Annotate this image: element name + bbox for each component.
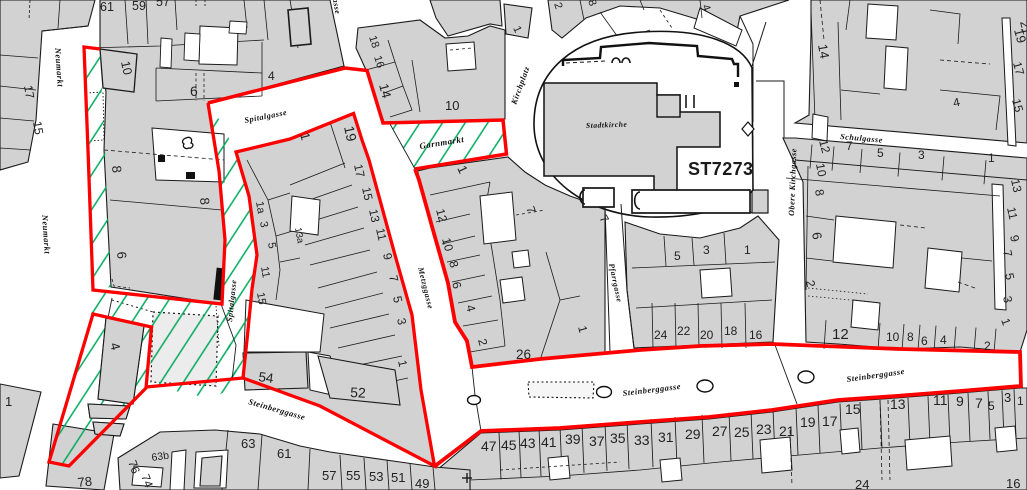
svg-text:15: 15 xyxy=(845,401,861,417)
svg-text:19: 19 xyxy=(800,414,816,430)
svg-text:8: 8 xyxy=(109,165,125,174)
svg-text:7: 7 xyxy=(846,139,853,153)
svg-text:33: 33 xyxy=(634,432,650,448)
svg-text:12: 12 xyxy=(832,326,849,343)
svg-text:8: 8 xyxy=(907,330,914,344)
svg-text:6: 6 xyxy=(114,251,130,260)
svg-text:3: 3 xyxy=(918,148,925,162)
svg-text:24: 24 xyxy=(855,477,869,490)
svg-text:18: 18 xyxy=(724,324,738,338)
svg-text:5: 5 xyxy=(877,146,884,160)
svg-text:15: 15 xyxy=(30,120,46,136)
svg-text:53: 53 xyxy=(369,469,383,484)
svg-text:1: 1 xyxy=(5,394,12,409)
svg-text:10: 10 xyxy=(886,330,900,344)
svg-text:3: 3 xyxy=(1004,390,1011,405)
svg-text:10: 10 xyxy=(445,98,459,113)
svg-text:43: 43 xyxy=(520,435,536,451)
svg-text:10: 10 xyxy=(813,162,829,178)
svg-text:25: 25 xyxy=(734,424,750,440)
svg-text:2: 2 xyxy=(984,339,991,353)
svg-text:20: 20 xyxy=(700,328,714,342)
svg-text:61: 61 xyxy=(277,446,291,461)
svg-text:9: 9 xyxy=(956,393,964,409)
svg-text:4: 4 xyxy=(268,69,275,83)
svg-text:1: 1 xyxy=(988,151,995,165)
svg-text:61: 61 xyxy=(100,0,114,14)
svg-text:17: 17 xyxy=(21,84,37,100)
svg-text:17: 17 xyxy=(822,413,838,429)
svg-text:6: 6 xyxy=(190,83,198,99)
svg-text:63b: 63b xyxy=(151,450,170,464)
svg-text:45: 45 xyxy=(501,437,517,453)
svg-text:78: 78 xyxy=(77,474,93,490)
svg-text:29: 29 xyxy=(685,426,701,442)
svg-text:27: 27 xyxy=(712,423,728,439)
svg-text:16: 16 xyxy=(1006,476,1020,490)
svg-text:23: 23 xyxy=(756,421,772,437)
svg-text:8: 8 xyxy=(197,197,213,206)
svg-text:35: 35 xyxy=(610,430,626,446)
svg-text:ST7273: ST7273 xyxy=(688,159,753,179)
svg-text:41: 41 xyxy=(541,434,557,450)
svg-text:24: 24 xyxy=(654,328,668,342)
svg-text:15: 15 xyxy=(254,291,268,305)
svg-text:54: 54 xyxy=(258,369,275,386)
svg-text:5: 5 xyxy=(988,399,995,413)
svg-text:Stadtkirche: Stadtkirche xyxy=(586,120,628,130)
svg-text:51: 51 xyxy=(391,470,405,485)
svg-text:31: 31 xyxy=(658,429,674,445)
svg-text:57: 57 xyxy=(322,468,336,483)
svg-text:1: 1 xyxy=(744,243,751,257)
svg-text:37: 37 xyxy=(589,433,605,449)
svg-text:49: 49 xyxy=(415,476,429,490)
svg-text:52: 52 xyxy=(350,384,367,401)
svg-text:4: 4 xyxy=(940,333,947,347)
svg-text:10: 10 xyxy=(118,60,135,77)
svg-text:5: 5 xyxy=(674,249,681,263)
svg-text:7: 7 xyxy=(975,395,983,411)
svg-text:39: 39 xyxy=(565,431,581,447)
svg-text:63: 63 xyxy=(241,436,255,451)
svg-text:14: 14 xyxy=(815,43,832,60)
svg-text:3: 3 xyxy=(703,243,710,257)
svg-text:16: 16 xyxy=(749,328,763,342)
svg-text:1: 1 xyxy=(1017,394,1024,408)
svg-text:13: 13 xyxy=(890,396,906,412)
svg-text:11: 11 xyxy=(933,392,948,408)
svg-text:59: 59 xyxy=(132,0,146,13)
svg-text:26: 26 xyxy=(516,347,531,362)
svg-text:21: 21 xyxy=(779,423,795,439)
svg-text:47: 47 xyxy=(481,438,497,454)
svg-text:22: 22 xyxy=(677,324,691,338)
svg-text:55: 55 xyxy=(346,468,360,483)
svg-text:11: 11 xyxy=(258,265,272,278)
svg-text:6: 6 xyxy=(921,334,928,348)
svg-text:57: 57 xyxy=(156,0,170,9)
